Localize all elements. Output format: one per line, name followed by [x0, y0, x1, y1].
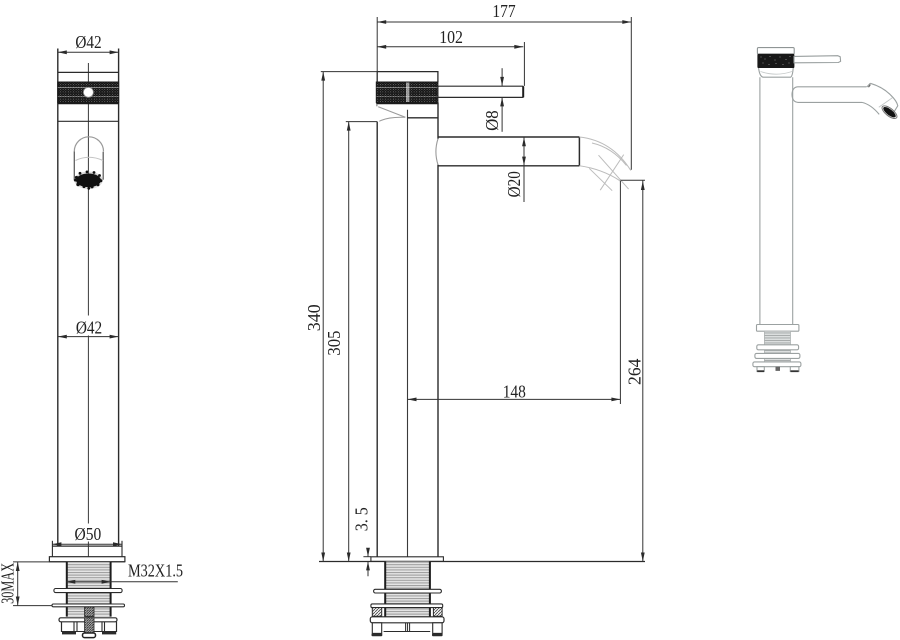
svg-text:Ø20: Ø20: [504, 171, 524, 197]
svg-text:148: 148: [503, 381, 526, 401]
svg-text:3. 5: 3. 5: [352, 507, 372, 531]
svg-text:M32X1.5: M32X1.5: [128, 560, 183, 580]
svg-text:340: 340: [304, 304, 324, 331]
svg-text:Ø50: Ø50: [75, 524, 102, 544]
svg-text:Ø42: Ø42: [75, 32, 101, 52]
svg-text:177: 177: [492, 1, 516, 21]
svg-text:305: 305: [324, 330, 344, 355]
svg-text:264: 264: [625, 358, 645, 385]
svg-text:102: 102: [439, 27, 463, 47]
svg-text:Ø8: Ø8: [482, 110, 502, 131]
svg-text:Ø42: Ø42: [76, 317, 102, 337]
svg-text:30MAX: 30MAX: [0, 563, 17, 604]
